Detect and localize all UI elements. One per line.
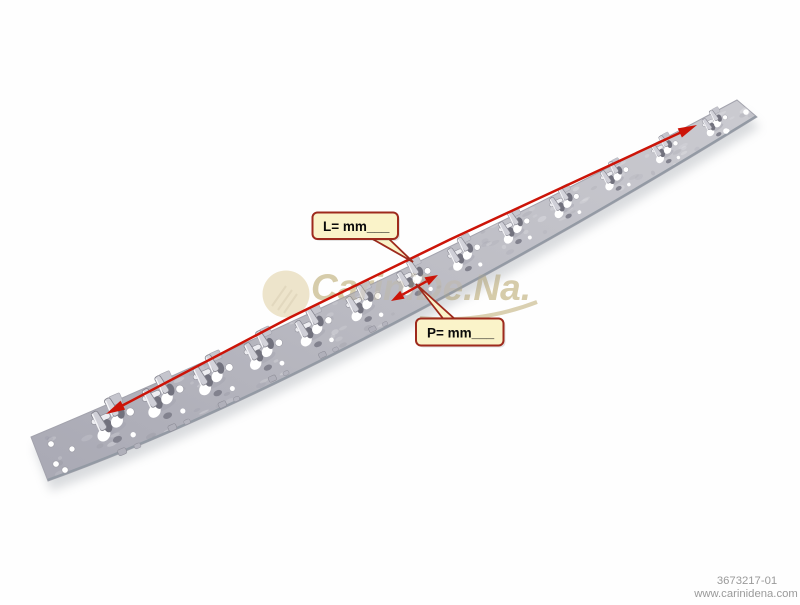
svg-text:L= mm___: L= mm___ [323,219,390,234]
svg-text:P= mm___: P= mm___ [427,326,495,341]
svg-text:3673217-01: 3673217-01 [717,575,777,587]
svg-text:www.carinidena.com: www.carinidena.com [693,588,798,600]
